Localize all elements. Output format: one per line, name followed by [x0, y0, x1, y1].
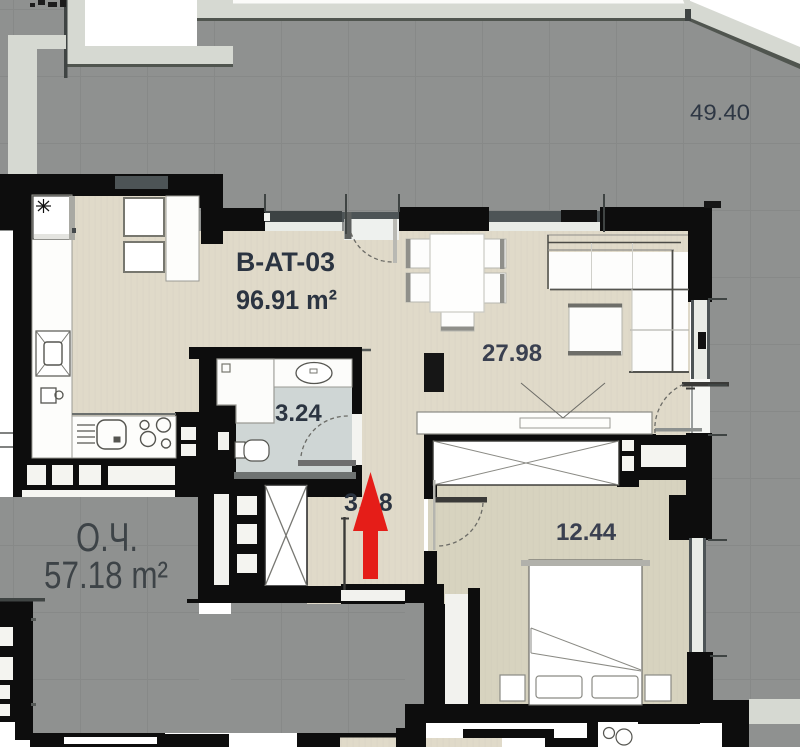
svg-text:B-AT-03: B-AT-03: [236, 247, 335, 277]
svg-text:49.40: 49.40: [690, 100, 750, 125]
svg-text:96.91 m²: 96.91 m²: [236, 285, 337, 315]
svg-text:3.24: 3.24: [275, 400, 322, 427]
svg-text:12.44: 12.44: [556, 519, 617, 546]
svg-text:57.18 m²: 57.18 m²: [44, 555, 168, 597]
svg-text:О.Ч.: О.Ч.: [76, 516, 138, 560]
svg-text:27.98: 27.98: [482, 340, 542, 367]
